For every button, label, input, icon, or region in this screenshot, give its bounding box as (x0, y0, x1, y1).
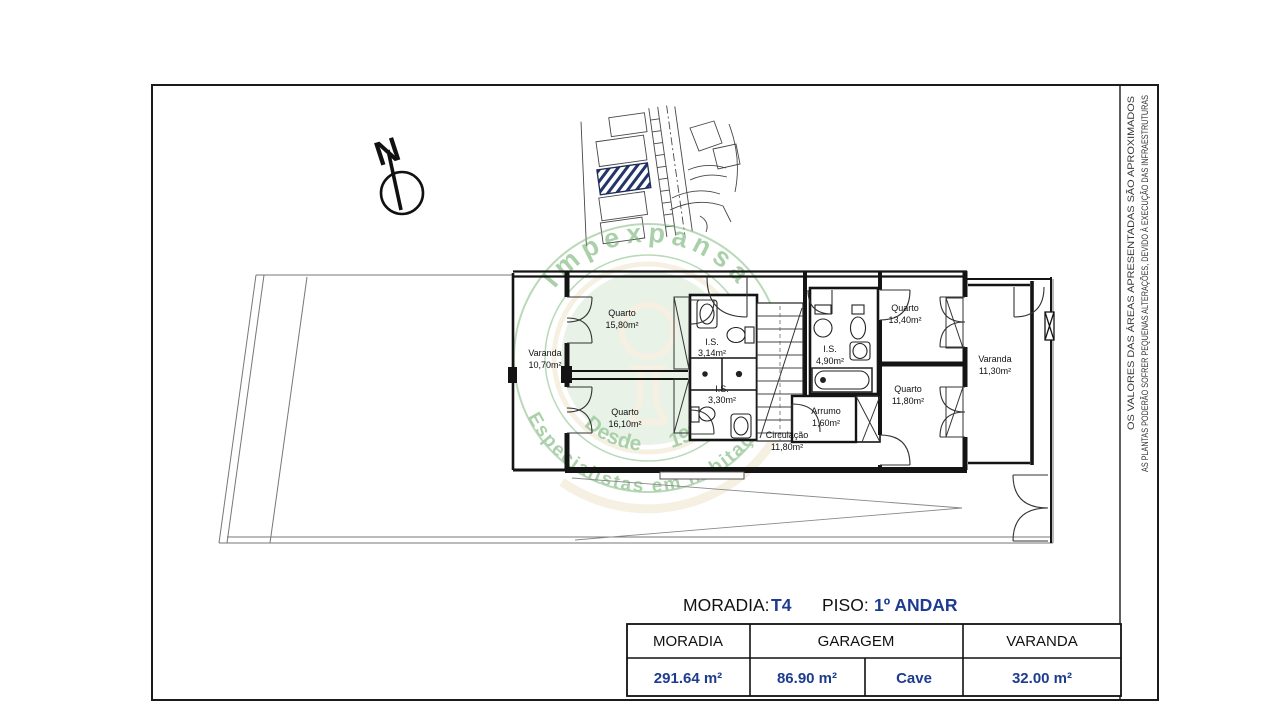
svg-text:4,90m²: 4,90m² (816, 356, 844, 366)
table-header-varanda: VARANDA (1006, 633, 1077, 650)
room-label-arrumo: Arrumo (811, 406, 841, 416)
floor-plan-sheet: OS VALORES DAS ÁREAS APRESENTADAS SÃO AP… (0, 0, 1280, 720)
north-letter: N (370, 130, 405, 174)
room-label-is-330: I.S. (715, 384, 729, 394)
room-label-quarto-1180: Quarto (894, 384, 922, 394)
highlighted-lot (597, 163, 651, 195)
svg-text:3,30m²: 3,30m² (708, 395, 736, 405)
room-label-quarto-1340: Quarto (891, 303, 919, 313)
svg-text:1,60m²: 1,60m² (812, 418, 840, 428)
title-piso-label: PISO: (822, 595, 869, 615)
svg-text:10,70m²: 10,70m² (528, 360, 561, 370)
table-value-cave: Cave (896, 670, 932, 687)
room-label-circulacao: Circulação (766, 430, 809, 440)
window-x-marker (1045, 312, 1054, 340)
table-value-garagem: 86.90 m² (777, 670, 837, 687)
svg-text:15,80m²: 15,80m² (605, 320, 638, 330)
disclaimer-sidebar: OS VALORES DAS ÁREAS APRESENTADAS SÃO AP… (1126, 95, 1150, 472)
title-moradia-label: MORADIA: (683, 595, 770, 615)
bath-block-right (810, 288, 878, 394)
room-label-varanda-left: Varanda (528, 348, 561, 358)
drawing-canvas: OS VALORES DAS ÁREAS APRESENTADAS SÃO AP… (0, 0, 1280, 720)
title-block: MORADIA: T4 PISO: 1º ANDAR (683, 595, 958, 615)
entry-step (660, 472, 744, 479)
title-piso-value: 1º ANDAR (874, 595, 958, 615)
table-value-moradia: 291.64 m² (654, 670, 722, 687)
room-label-is-314: I.S. (705, 337, 719, 347)
svg-text:11,80m²: 11,80m² (892, 396, 924, 406)
svg-text:11,30m²: 11,30m² (979, 366, 1011, 376)
table-header-garagem: GARAGEM (818, 633, 895, 650)
svg-text:3,14m²: 3,14m² (698, 348, 726, 358)
disclaimer-line-1: OS VALORES DAS ÁREAS APRESENTADAS SÃO AP… (1126, 96, 1136, 430)
table-value-varanda: 32.00 m² (1012, 670, 1072, 687)
room-label-is-490: I.S. (823, 344, 837, 354)
svg-text:13,40m²: 13,40m² (888, 315, 921, 325)
north-arrow-icon: N (370, 130, 423, 214)
disclaimer-line-2: AS PLANTAS PODERÃO SOFRER PEQUENAS ALTER… (1140, 95, 1150, 472)
room-label-quarto-1610: Quarto (611, 407, 639, 417)
room-label-quarto-1580: Quarto (608, 308, 636, 318)
table-header-moradia: MORADIA (653, 633, 723, 650)
svg-text:11,80m²: 11,80m² (771, 442, 803, 452)
title-moradia-value: T4 (771, 595, 792, 615)
room-label-varanda-right: Varanda (978, 354, 1011, 364)
area-table: MORADIA GARAGEM VARANDA 291.64 m² 86.90 … (627, 624, 1121, 696)
svg-text:16,10m²: 16,10m² (608, 419, 641, 429)
